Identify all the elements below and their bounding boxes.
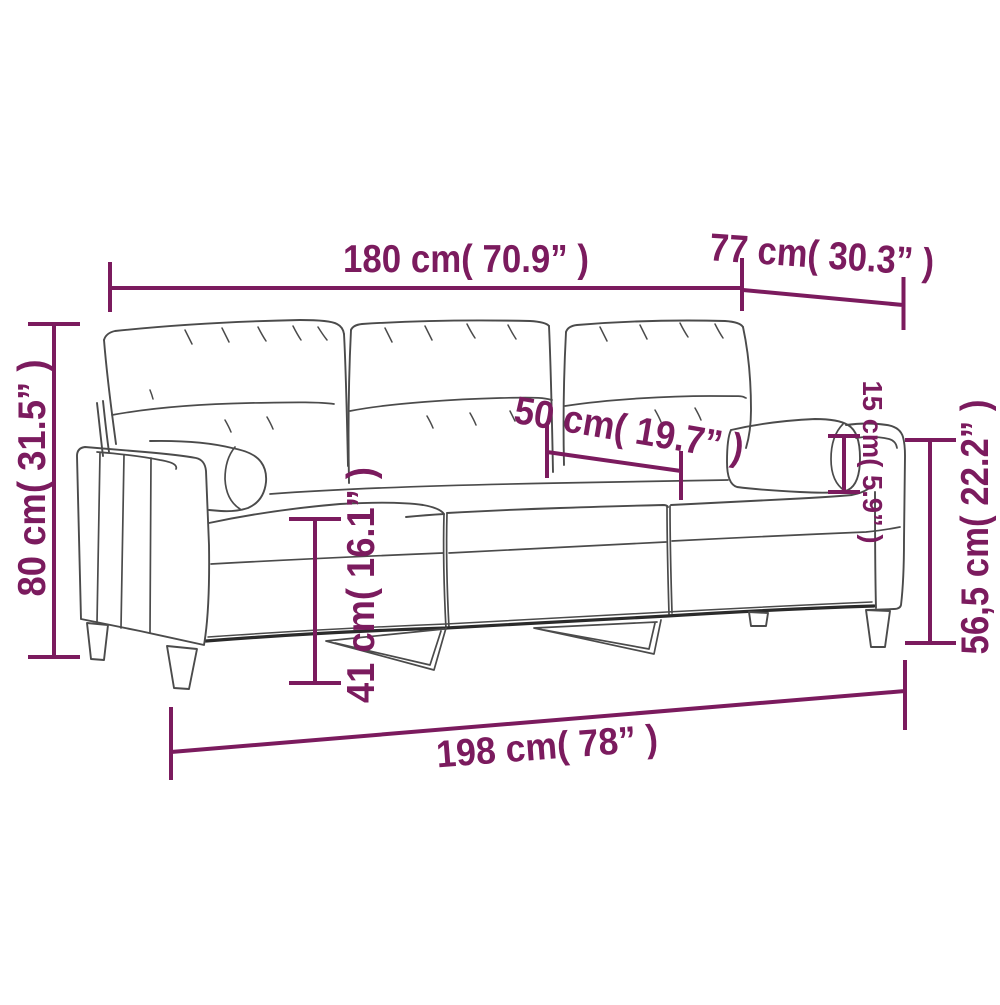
svg-text:56,5 cm( 22.2” ): 56,5 cm( 22.2” ): [954, 400, 997, 655]
svg-text:80 cm( 31.5” ): 80 cm( 31.5” ): [11, 360, 54, 597]
svg-text:41 cm( 16.1” ): 41 cm( 16.1” ): [340, 467, 383, 703]
svg-text:15 cm( 5.9” ): 15 cm( 5.9” ): [857, 381, 888, 544]
svg-text:180 cm( 70.9” ): 180 cm( 70.9” ): [343, 238, 589, 281]
